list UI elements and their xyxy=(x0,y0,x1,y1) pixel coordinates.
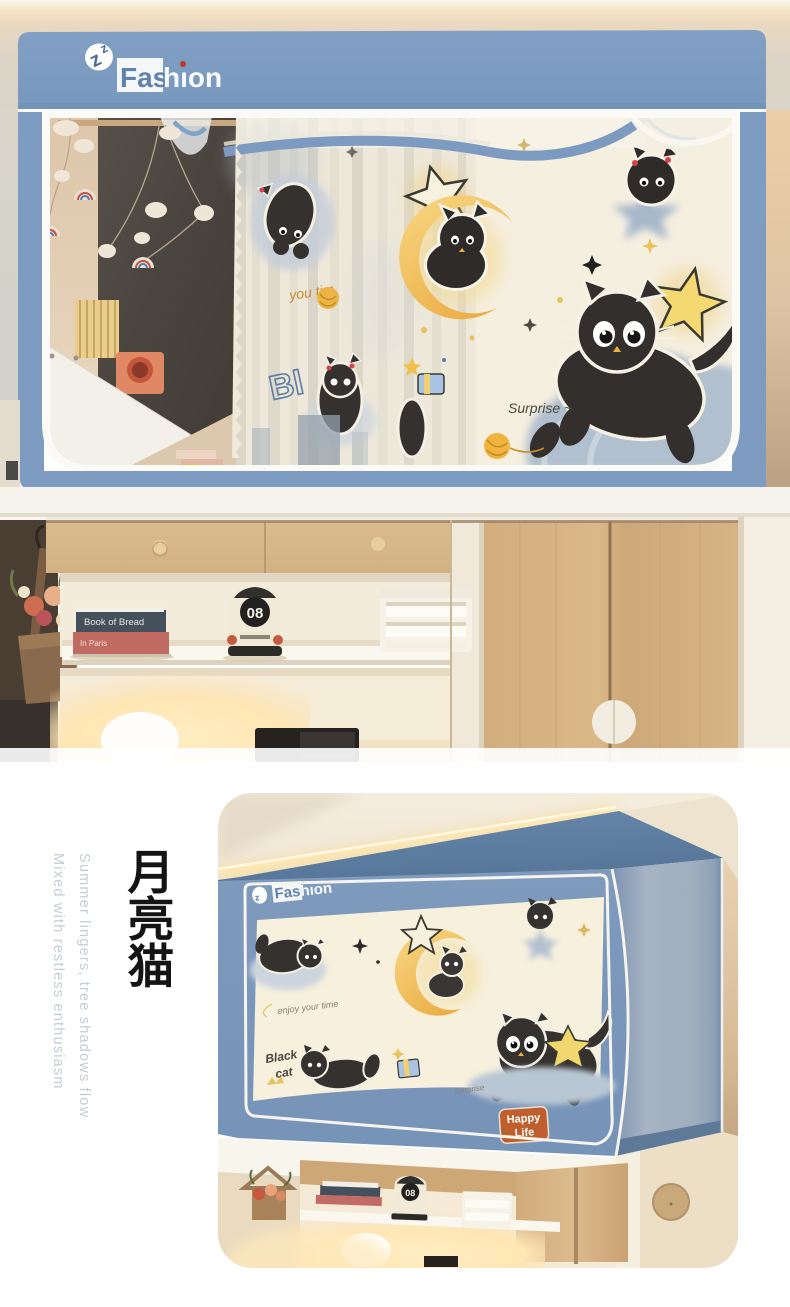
svg-text:08: 08 xyxy=(405,1188,415,1198)
svg-text:08: 08 xyxy=(247,605,264,622)
svg-text:cat: cat xyxy=(274,1064,294,1081)
svg-text:Surprise ~: Surprise ~ xyxy=(508,400,572,416)
svg-text:hıon: hıon xyxy=(163,62,222,93)
svg-text:Book of Bread: Book of Bread xyxy=(84,617,144,628)
svg-text:Fas: Fas xyxy=(274,883,301,903)
svg-text:Fas: Fas xyxy=(120,62,168,93)
svg-text:In Paris: In Paris xyxy=(80,639,107,648)
svg-text:Happy: Happy xyxy=(506,1112,541,1126)
